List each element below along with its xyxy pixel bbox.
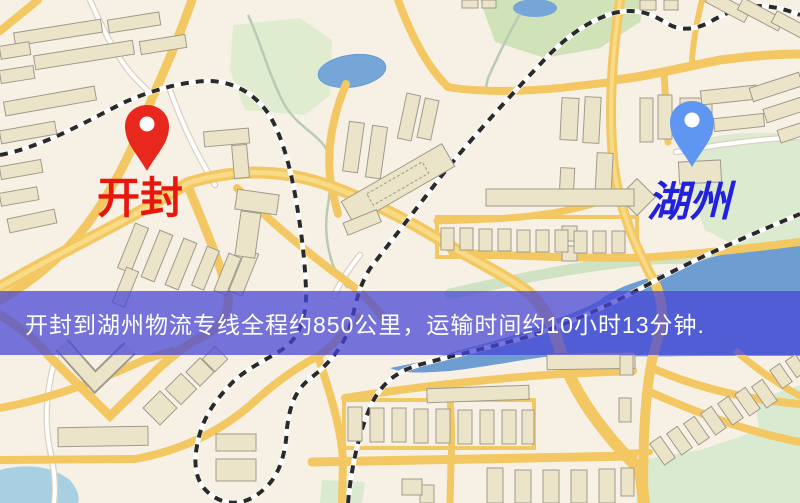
route-banner-text: 开封到湖州物流专线全程约850公里，运输时间约10小时13分钟. <box>25 306 705 340</box>
pin-hole <box>685 113 700 128</box>
route-banner: 开封到湖州物流专线全程约850公里，运输时间约10小时13分钟. <box>0 291 800 355</box>
pin-hole <box>140 117 155 132</box>
marker-kaifeng-label: 开封 <box>97 175 183 223</box>
map-screenshot: 开封 湖州 开封到湖州物流专线全程约850公里，运输时间约10小时13分钟. <box>0 0 800 503</box>
marker-huzhou-label: 湖州 <box>647 178 737 225</box>
map-canvas[interactable]: 开封 湖州 <box>0 0 800 503</box>
